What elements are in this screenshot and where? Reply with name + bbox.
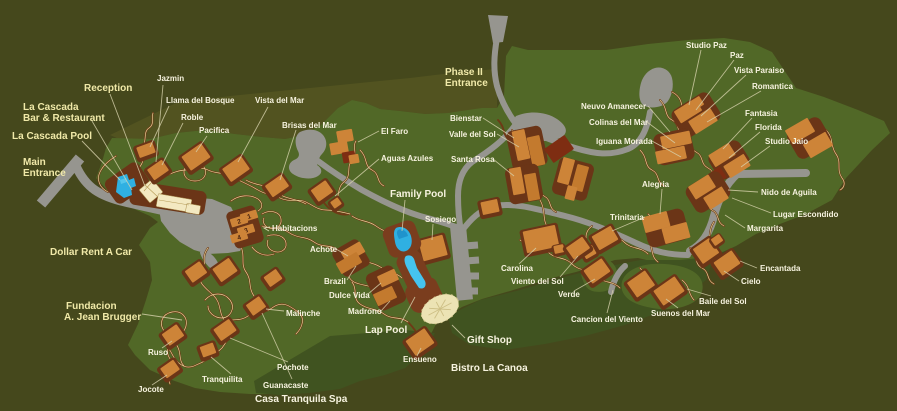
svg-text:Fantasia: Fantasia [745, 109, 778, 118]
svg-text:Ensueno: Ensueno [403, 355, 437, 364]
svg-text:Sosiego: Sosiego [425, 215, 456, 224]
svg-text:Romantica: Romantica [752, 82, 793, 91]
svg-text:Llama del Bosque: Llama del Bosque [166, 96, 235, 105]
svg-text:La Cascada: La Cascada [23, 102, 79, 113]
svg-text:Casa Tranquila Spa: Casa Tranquila Spa [255, 394, 348, 405]
svg-text:Madrono: Madrono [348, 307, 382, 316]
svg-text:Florida: Florida [755, 123, 782, 132]
svg-text:Brazil: Brazil [324, 277, 346, 286]
svg-text:Cielo: Cielo [741, 277, 761, 286]
svg-text:Entrance: Entrance [23, 168, 66, 179]
svg-text:Roble: Roble [181, 113, 204, 122]
svg-text:Gift Shop: Gift Shop [467, 335, 512, 346]
svg-text:Nido de Aguila: Nido de Aguila [761, 188, 817, 197]
svg-text:Tranquilita: Tranquilita [202, 375, 243, 384]
svg-text:Brisas del Mar: Brisas del Mar [282, 121, 337, 130]
svg-text:Valle del Sol: Valle del Sol [449, 130, 496, 139]
svg-text:El Faro: El Faro [381, 127, 408, 136]
svg-text:Vista Paraiso: Vista Paraiso [734, 66, 784, 75]
svg-text:Trinitaria: Trinitaria [610, 213, 644, 222]
svg-text:Achote: Achote [310, 245, 338, 254]
svg-text:Encantada: Encantada [760, 264, 801, 273]
svg-text:Family Pool: Family Pool [390, 189, 446, 200]
svg-text:Neuvo Amanecer: Neuvo Amanecer [581, 102, 646, 111]
svg-text:Verde: Verde [558, 290, 580, 299]
svg-text:Bistro La Canoa: Bistro La Canoa [451, 363, 528, 374]
svg-text:Entrance: Entrance [445, 78, 488, 89]
svg-text:Studio Jaio: Studio Jaio [765, 137, 808, 146]
svg-text:Phase II: Phase II [445, 67, 483, 78]
svg-text:Fundacion: Fundacion [66, 301, 117, 312]
svg-text:Pacifica: Pacifica [199, 126, 230, 135]
svg-text:Habitacions: Habitacions [272, 224, 318, 233]
svg-text:Studio Paz: Studio Paz [686, 41, 727, 50]
svg-text:A. Jean Brugger: A. Jean Brugger [64, 312, 141, 323]
svg-text:Dulce Vida: Dulce Vida [329, 291, 370, 300]
svg-text:Jocote: Jocote [138, 385, 164, 394]
svg-text:Vista del Mar: Vista del Mar [255, 96, 304, 105]
svg-text:Alegria: Alegria [642, 180, 670, 189]
svg-text:Malinche: Malinche [286, 309, 321, 318]
svg-text:Main: Main [23, 157, 46, 168]
svg-text:Carolina: Carolina [501, 264, 534, 273]
svg-text:Dollar Rent A Car: Dollar Rent A Car [50, 247, 132, 258]
svg-text:Colinas del Mar: Colinas del Mar [589, 118, 648, 127]
svg-text:Suenos del Mar: Suenos del Mar [651, 309, 710, 318]
svg-text:Santa Rosa: Santa Rosa [451, 155, 495, 164]
svg-text:Guanacaste: Guanacaste [263, 381, 309, 390]
svg-text:Paz: Paz [730, 51, 744, 60]
svg-text:Reception: Reception [84, 83, 132, 94]
svg-text:Pochote: Pochote [277, 363, 309, 372]
svg-text:Lugar Escondido: Lugar Escondido [773, 210, 838, 219]
svg-text:Bar & Restaurant: Bar & Restaurant [23, 113, 105, 124]
svg-text:Baile del Sol: Baile del Sol [699, 297, 747, 306]
svg-text:Lap Pool: Lap Pool [365, 325, 407, 336]
svg-text:Viento del Sol: Viento del Sol [511, 277, 564, 286]
svg-text:Aguas Azules: Aguas Azules [381, 154, 434, 163]
svg-text:Ruso: Ruso [148, 348, 168, 357]
svg-text:La Cascada Pool: La Cascada Pool [12, 131, 92, 142]
svg-text:Iguana Morada: Iguana Morada [596, 137, 653, 146]
svg-text:Bienstar: Bienstar [450, 114, 482, 123]
svg-text:Margarita: Margarita [747, 224, 784, 233]
svg-text:Jazmin: Jazmin [157, 74, 184, 83]
svg-text:Cancion del Viento: Cancion del Viento [571, 315, 643, 324]
